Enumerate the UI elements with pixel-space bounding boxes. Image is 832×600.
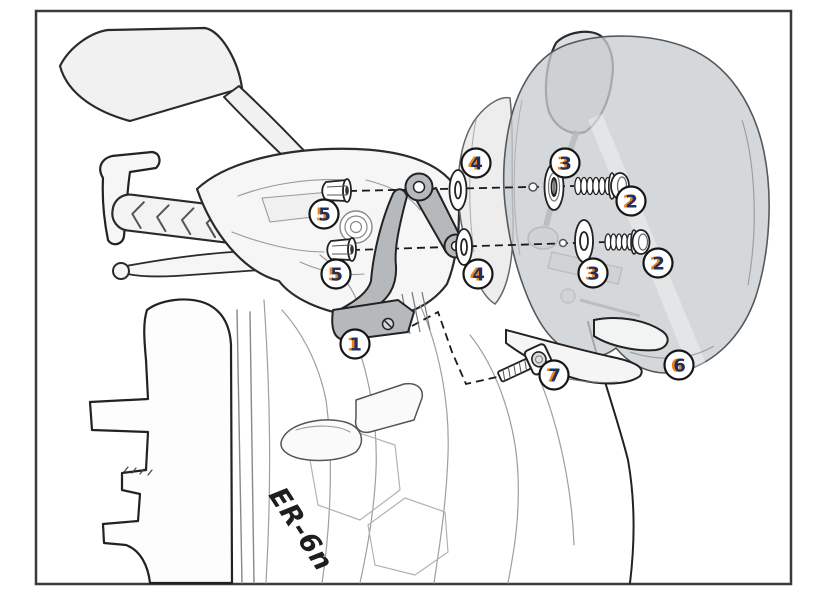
callout-number: 5 (330, 265, 343, 286)
callout-number: 3 (559, 154, 572, 175)
callout-number: 6 (673, 356, 686, 377)
callout-5a: 5 5 (310, 200, 339, 229)
callout-number: 1 (349, 335, 362, 356)
callout-number: 3 (587, 264, 600, 285)
flange-nut-lower (327, 238, 356, 261)
callout-5b: 5 5 (322, 260, 351, 289)
callout-number: 7 (548, 366, 561, 387)
callout-6: 6 6 (665, 351, 694, 380)
spacer-washer-upper (450, 170, 467, 210)
callout-7: 7 7 (540, 361, 569, 390)
callout-2a: 2 2 (617, 187, 646, 216)
callout-1: 1 1 (341, 330, 370, 359)
callout-number: 5 (318, 205, 331, 226)
callout-number: 2 (652, 254, 665, 275)
flange-nut-upper (322, 179, 351, 202)
bracket-hole-upper (414, 182, 425, 193)
callout-number: 4 (470, 154, 483, 175)
well-nut-lower (575, 220, 593, 262)
callout-3b: 3 3 (579, 259, 608, 288)
screen-hole-upper (529, 183, 537, 191)
instruction-figure: ER-6n (0, 0, 832, 600)
screen-hole-lower (560, 240, 567, 247)
spacer-washer-lower (456, 229, 472, 265)
callout-3a: 3 3 (551, 149, 580, 178)
callout-4a: 4 4 (462, 149, 491, 178)
callout-number: 4 (472, 265, 485, 286)
callout-number: 2 (625, 192, 638, 213)
exploded-view-drawing: ER-6n (0, 0, 832, 600)
callout-4b: 4 4 (464, 260, 493, 289)
lever-ball-end (113, 263, 129, 279)
callout-2b: 2 2 (644, 249, 673, 278)
